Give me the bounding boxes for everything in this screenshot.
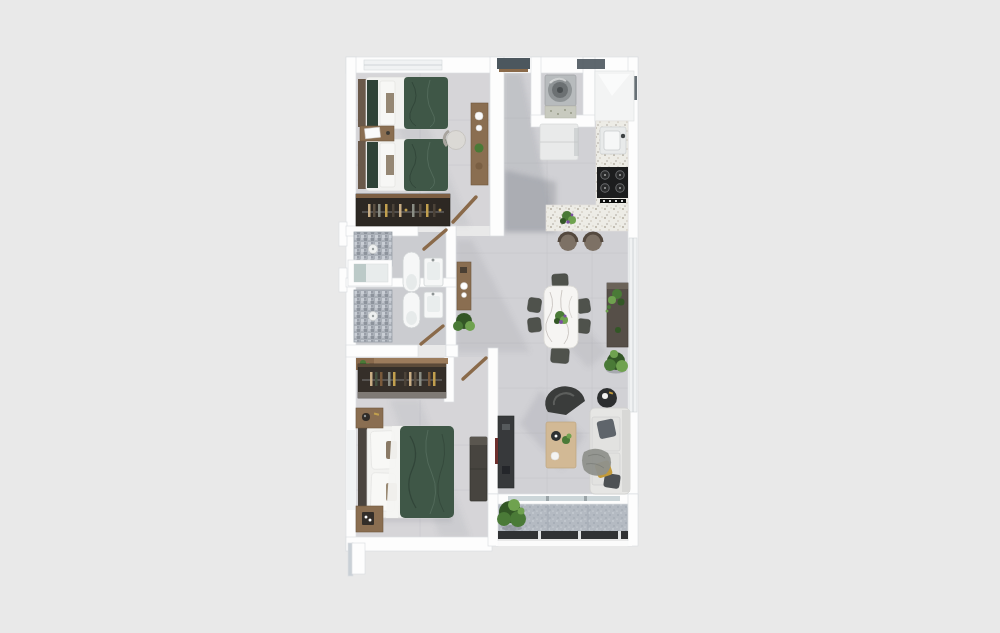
- bath-niche: [348, 260, 392, 286]
- wall-bath2-bottom-a: [346, 345, 418, 357]
- laundry-counter: [545, 106, 576, 118]
- refrigerator: [540, 124, 579, 160]
- wall-stub-bottom-left: [352, 543, 365, 574]
- floor-plan-render: [0, 0, 1000, 633]
- marble-dining-table: [544, 286, 578, 348]
- wall-master-bottom: [346, 537, 492, 551]
- kitchen-sink: [600, 127, 626, 154]
- nightstand-master-top: [356, 408, 383, 428]
- dining-chair-bottom: [550, 347, 569, 363]
- wall-balcony-right: [628, 494, 638, 546]
- wall-master-right: [488, 348, 498, 504]
- dresser: [470, 437, 487, 501]
- wardrobe: [356, 194, 450, 226]
- wall-bath2-bottom-b: [446, 345, 458, 357]
- dining-chair-top: [552, 274, 569, 288]
- throw-blanket: [582, 449, 611, 476]
- master-left-window: [347, 430, 355, 510]
- twin-bed-2: [358, 139, 448, 191]
- bar-stool-1: [559, 233, 577, 251]
- balcony-glass-door: [508, 496, 620, 501]
- balcony-railing: [498, 531, 628, 539]
- nightstand-master-bottom: [356, 506, 383, 532]
- round-side-table: [597, 388, 617, 408]
- coffee-table: [546, 422, 576, 468]
- counter-bottom-strip: [546, 205, 628, 231]
- nightstand-bedroom2: [360, 126, 394, 141]
- faucet: [621, 134, 625, 138]
- kitchen-top-window: [577, 59, 605, 69]
- dining-chair-left-1: [527, 297, 542, 313]
- sideboard: [606, 283, 629, 347]
- wall-balcony-left: [488, 494, 498, 546]
- dining-chair-right-2: [576, 318, 590, 333]
- twin-bed-1: [358, 77, 448, 129]
- dining-chair-left-2: [527, 317, 541, 332]
- tv-screen-edge: [495, 438, 498, 464]
- wall-bedroom2-right: [490, 57, 504, 236]
- cooktop: [597, 167, 628, 203]
- open-closet: [356, 358, 448, 398]
- desk: [471, 103, 488, 185]
- tv-console: [495, 416, 514, 488]
- wall-laundry-left: [531, 57, 541, 123]
- floor-plan-canvas: [0, 0, 1000, 633]
- entry-door-recess: [497, 58, 530, 69]
- entry-door-header: [499, 69, 528, 72]
- double-bed: [358, 424, 454, 518]
- railing-outer-ledge: [496, 541, 632, 546]
- room-laundry-nook: [545, 75, 576, 118]
- bar-stool-2: [584, 233, 602, 251]
- wall-bathrooms-right: [446, 226, 456, 357]
